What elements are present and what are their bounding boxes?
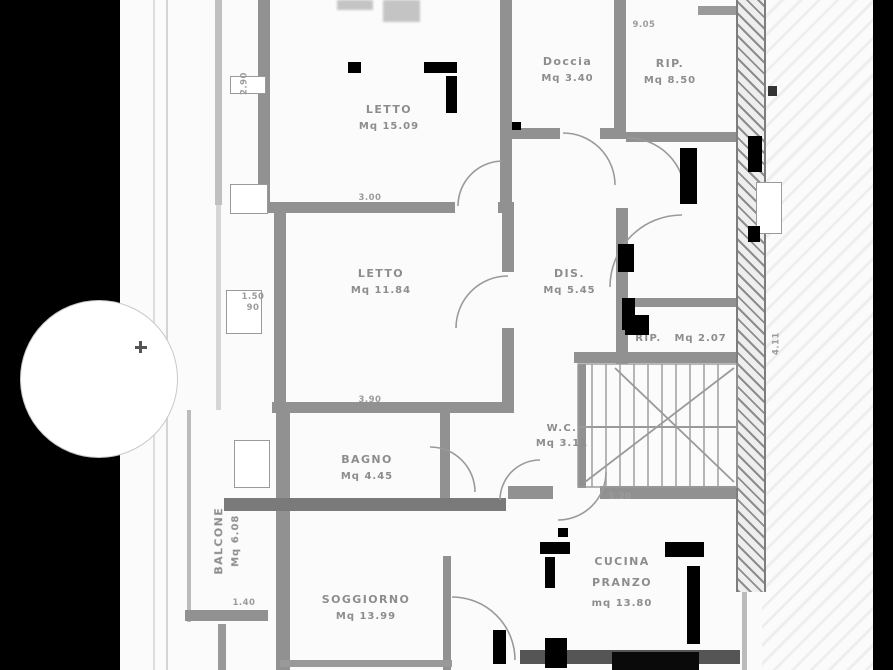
room-name: BAGNO: [341, 453, 392, 466]
scan-artifact: [558, 528, 568, 537]
room-name: Doccia: [543, 55, 592, 68]
room-area: Mq 5.45: [522, 283, 617, 298]
scan-artifact: [748, 226, 760, 242]
room-label-wc: W.C. Mq 3.11: [518, 421, 606, 451]
room-area: Mq 15.09: [328, 119, 450, 134]
scan-artifact: [687, 566, 700, 644]
room-label-dis: DIS. Mq 5.45: [522, 266, 617, 298]
floor-plan-scan: LETTO Mq 15.09 Doccia Mq 3.40 RIP. Mq 8.…: [0, 0, 893, 670]
room-name: CUCINA: [594, 555, 649, 568]
scan-artifact: [446, 76, 457, 113]
dimension-text: 1.20: [598, 492, 642, 503]
dimension-text: 9.05: [624, 20, 664, 31]
scan-artifact: [540, 542, 570, 554]
room-name: LETTO: [366, 103, 412, 116]
door-arc: [628, 138, 685, 195]
room-area: Mq 2.07: [674, 333, 726, 344]
scan-artifact: [625, 315, 649, 335]
room-name: BALCONE: [212, 507, 225, 575]
stair-direction-line: [615, 368, 734, 482]
scan-artifact: [383, 0, 420, 22]
scan-artifact: [424, 62, 457, 73]
dimension-text: 3.00: [350, 193, 390, 204]
door-arc: [458, 161, 503, 206]
scan-artifact: [665, 542, 704, 557]
scan-artifact: [618, 244, 634, 272]
door-arc: [456, 276, 508, 328]
room-area: Mq 8.50: [618, 73, 722, 88]
scan-artifact: [493, 630, 506, 664]
door-arc: [430, 447, 475, 492]
room-name: W.C.: [547, 423, 578, 434]
room-label-soggiorno: SOGGIORNO Mq 13.99: [292, 592, 440, 624]
scan-artifact: [680, 148, 697, 204]
scan-artifact: [545, 557, 555, 588]
room-name-2: PRANZO: [592, 576, 652, 589]
room-label-doccia: Doccia Mq 3.40: [520, 54, 615, 86]
room-name: RIP.: [656, 57, 684, 70]
room-label-rip-grande: RIP. Mq 8.50: [618, 56, 722, 88]
room-label-letto-1: LETTO Mq 15.09: [328, 102, 450, 134]
door-arc: [500, 460, 540, 500]
room-name: LETTO: [358, 267, 404, 280]
room-label-cucina-pranzo: CUCINA PRANZO mq 13.80: [572, 552, 672, 613]
dimension-text: 4.11: [771, 319, 782, 369]
scan-artifact: [512, 122, 521, 130]
scan-artifact: [348, 62, 361, 73]
room-name: SOGGIORNO: [322, 593, 410, 606]
door-arc: [563, 133, 615, 185]
room-area: Mq 11.84: [322, 283, 440, 298]
room-label-balcone: BALCONE Mq 6.08: [211, 476, 243, 606]
room-label-bagno: BAGNO Mq 4.45: [307, 452, 427, 484]
dimension-text: 2.90: [239, 64, 250, 104]
scan-artifact: [748, 136, 762, 172]
room-name: DIS.: [554, 267, 585, 280]
room-area: mq 13.80: [572, 594, 672, 613]
dimension-text: 1.40: [222, 598, 266, 609]
room-label-letto-2: LETTO Mq 11.84: [322, 266, 440, 298]
scan-artifact: [337, 0, 373, 10]
scan-artifact: [768, 86, 777, 96]
scan-artifact: [612, 652, 699, 670]
scan-border-right: [873, 0, 893, 670]
room-area: Mq 3.11: [518, 436, 606, 451]
room-area: Mq 13.99: [292, 609, 440, 624]
dimension-text: 3.90: [350, 395, 390, 406]
register-cross: [139, 341, 142, 353]
punch-hole: [20, 300, 178, 458]
stair-direction-line: [585, 368, 734, 482]
dimension-text: 1.5090: [238, 292, 268, 314]
scan-artifact: [545, 638, 567, 668]
room-area: Mq 4.45: [307, 469, 427, 484]
room-area: Mq 6.08: [228, 476, 243, 606]
room-area: Mq 3.40: [520, 71, 615, 86]
